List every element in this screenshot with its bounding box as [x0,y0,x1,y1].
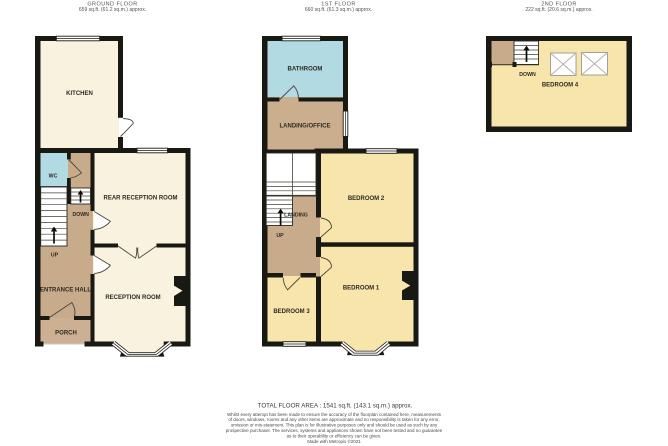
svg-text:RECEPTION ROOM: RECEPTION ROOM [105,295,160,301]
svg-text:as to their operability or eff: as to their operability or efficiency ca… [287,433,382,438]
svg-text:BATHROOM: BATHROOM [288,67,323,73]
svg-text:BEDROOM 2: BEDROOM 2 [348,196,385,202]
svg-text:UP: UP [51,253,59,259]
svg-text:LANDING/OFFICE: LANDING/OFFICE [280,124,331,130]
svg-text:prospective purchaser. The ser: prospective purchaser. The services, sys… [226,428,443,433]
svg-text:of doors, windows, rooms and a: of doors, windows, rooms and any other i… [228,417,439,422]
svg-text:BEDROOM 3: BEDROOM 3 [273,309,310,315]
svg-text:BEDROOM 1: BEDROOM 1 [343,286,380,292]
svg-text:omission or mis-statement. Thi: omission or mis-statement. This plan is … [231,423,438,428]
svg-text:LANDING: LANDING [284,213,308,219]
svg-text:659 sq.ft. (61.2 sq.m.) approx: 659 sq.ft. (61.2 sq.m.) approx. [79,7,146,13]
svg-text:PORCH: PORCH [55,331,77,337]
svg-text:DOWN: DOWN [72,212,89,218]
svg-text:WC: WC [49,174,58,180]
svg-text:ENTRANCE HALL: ENTRANCE HALL [40,288,91,294]
svg-text:REAR RECEPTION ROOM: REAR RECEPTION ROOM [103,196,177,202]
svg-text:DOWN: DOWN [519,72,536,78]
svg-text:TOTAL FLOOR AREA : 1541 sq.ft.: TOTAL FLOOR AREA : 1541 sq.ft. (143.1 sq… [258,403,413,410]
svg-text:222 sq.ft. (20.6 sq.m.) approx: 222 sq.ft. (20.6 sq.m.) approx. [525,7,592,13]
svg-text:660 sq.ft. (61.3 sq.m.) approx: 660 sq.ft. (61.3 sq.m.) approx. [305,7,372,13]
svg-text:UP: UP [276,233,284,239]
svg-text:BEDROOM 4: BEDROOM 4 [542,83,579,89]
svg-text:Made with Metropix ©2021: Made with Metropix ©2021 [307,438,361,444]
svg-text:KITCHEN: KITCHEN [66,91,93,97]
svg-text:Whilst every attempt has been: Whilst every attempt has been made to en… [227,412,442,417]
